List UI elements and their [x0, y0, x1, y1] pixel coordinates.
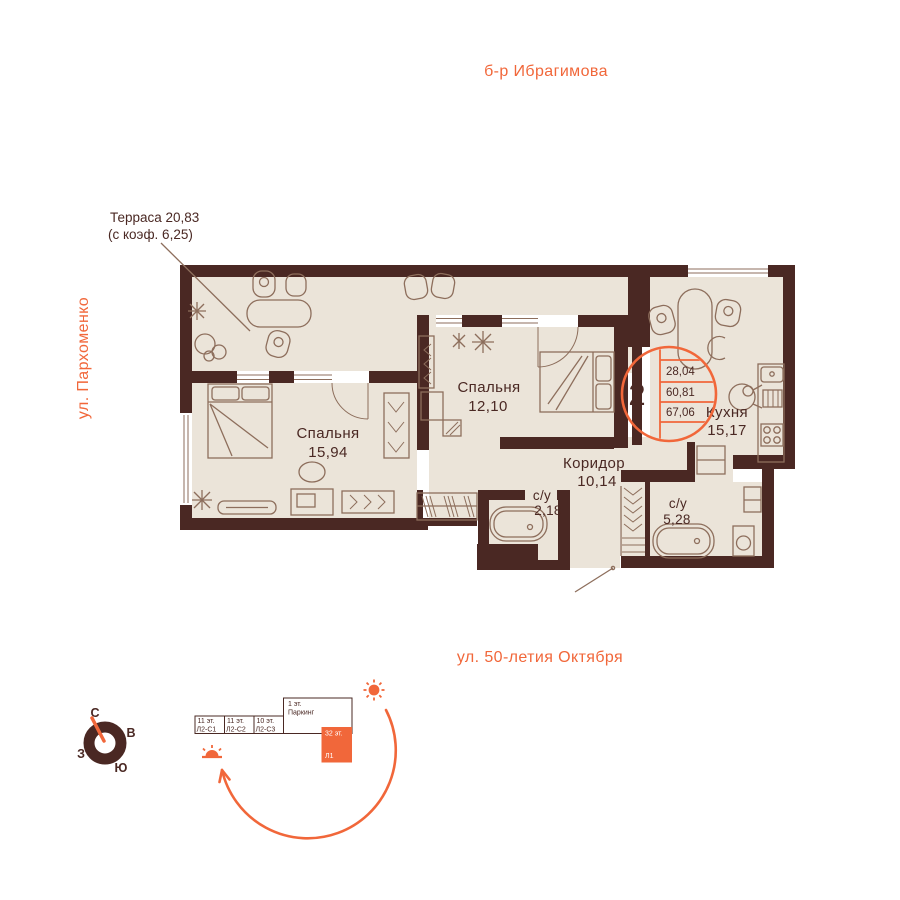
street-label-bottom: ул. 50-летия Октября [457, 649, 623, 666]
sun-icon [364, 680, 385, 701]
street-label-left: ул. Пархоменко [75, 297, 92, 419]
room-area-kitchen: 15,17 [707, 422, 747, 439]
badge-area-total: 67,06 [666, 407, 695, 419]
room-area-corridor: 10,14 [577, 473, 617, 490]
floorplan-canvas: Спальня 15,94 Спальня 12,10 Коридор 10,1… [0, 0, 900, 900]
compass-east-label: В [126, 726, 135, 740]
site-block1-label: Л2-С1 [197, 727, 217, 734]
terrace-note-line2: (с коэф. 6,25) [108, 227, 193, 242]
compass-south-label: Ю [115, 761, 128, 775]
room-area-bedroom1: 15,94 [308, 444, 348, 461]
sunset-icon [202, 745, 222, 757]
site-l1-label: Л1 [325, 753, 334, 760]
site-parking-label: Паркинг [288, 710, 315, 717]
badge-area-living: 28,04 [666, 366, 695, 378]
room-name-bath-small: с/у [533, 488, 551, 503]
site-parking-floors: 1 эт. [288, 701, 302, 708]
site-plan: 11 эт. Л2-С1 11 эт. Л2-С2 10 эт. Л2-С3 1… [195, 680, 396, 839]
compass-west-label: З [77, 747, 85, 761]
site-block1-floors: 11 эт. [198, 718, 215, 725]
site-l1-floors: 32 эт. [325, 731, 343, 738]
room-name-bath-big: с/у [669, 496, 687, 511]
room-name-bedroom1: Спальня [296, 425, 359, 442]
badge-area-main: 60,81 [666, 387, 695, 399]
compass-ring [89, 727, 121, 759]
badge-rooms-count: 2 [628, 377, 645, 412]
room-area-bath-small: 2,18 [534, 503, 561, 518]
street-label-top: б-р Ибрагимова [484, 63, 608, 80]
terrace-note: Терраса 20,83 (с коэф. 6,25) [108, 210, 199, 242]
room-name-bedroom2: Спальня [457, 379, 520, 396]
plant-icon [192, 490, 212, 510]
site-block3-floors: 10 эт. [257, 718, 275, 725]
room-area-bath-big: 5,28 [663, 512, 690, 527]
compass: С В Ю З [77, 706, 135, 775]
room-area-bedroom2: 12,10 [468, 398, 508, 415]
site-block2-label: Л2-С2 [226, 727, 246, 734]
site-block3-label: Л2-С3 [256, 727, 276, 734]
floorplan-page: Спальня 15,94 Спальня 12,10 Коридор 10,1… [0, 0, 900, 900]
compass-north-label: С [90, 706, 99, 720]
entry-door [575, 566, 615, 592]
terrace-note-line1: Терраса 20,83 [110, 210, 199, 225]
room-name-corridor: Коридор [563, 455, 625, 472]
site-block2-floors: 11 эт. [227, 718, 244, 725]
